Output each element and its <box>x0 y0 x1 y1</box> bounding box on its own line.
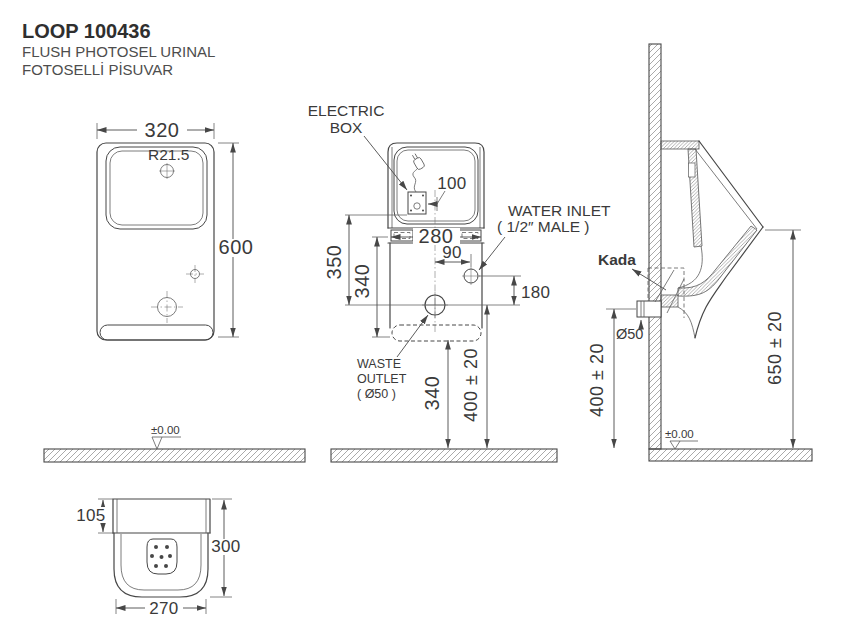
floor-level-marker-front: ±0.00 <box>151 424 181 449</box>
radius-label: R21.5 <box>148 146 189 163</box>
side-view: Kada Ø50 400 ± 20 650 ± 20 ±0.00 <box>587 44 812 461</box>
dim-340-lower-label: 340 <box>421 376 443 411</box>
dim-water-inlet-drop-180: 180 <box>479 276 550 305</box>
pipe-diameter-text: Ø50 <box>616 326 643 342</box>
electric-box <box>408 192 426 214</box>
dim-300-label: 300 <box>211 537 240 556</box>
water-inlet-label: WATER INLET ( 1/2″ MALE ) <box>479 202 611 270</box>
rear-view: ELECTRIC BOX 100 280 WATER INLET ( 1/2″ … <box>308 102 611 462</box>
electric-box-label-line1: ELECTRIC <box>308 102 385 119</box>
wall-section <box>649 44 661 449</box>
dim-400-rear-label: 400 ± 20 <box>461 348 481 422</box>
bowl-plan-inner <box>121 534 201 590</box>
power-cable-plug <box>410 152 425 192</box>
waste-outlet-label-line2: OUTLET <box>357 372 407 386</box>
dim-600-label: 600 <box>219 236 254 258</box>
floor-rear <box>331 449 557 462</box>
spud-band-inner-edges <box>117 499 206 533</box>
inlet-channel-notch <box>689 163 696 177</box>
drawing-canvas: LOOP 100436 FLUSH PHOTOSEL URINAL FOTOSE… <box>0 0 855 628</box>
dim-105-label: 105 <box>76 506 105 525</box>
waste-outlet-marker <box>422 292 448 318</box>
dim-400-side-label: 400 ± 20 <box>587 343 607 417</box>
dim-install-height-400: 400 ± 20 <box>461 305 487 448</box>
outlet-pipe <box>637 301 661 317</box>
dim-350-label: 350 <box>323 245 345 280</box>
dim-electric-box-offset-100: 100 <box>428 174 467 211</box>
product-name-en: FLUSH PHOTOSEL URINAL <box>22 43 215 60</box>
drain-strainer <box>147 539 177 574</box>
floor-side <box>649 449 812 461</box>
dim-rim-height-650: 650 ± 20 <box>765 230 801 448</box>
inner-top-edge <box>695 149 757 229</box>
product-name-tr: FOTOSELLİ PİSUVAR <box>22 61 173 78</box>
waste-outlet-label-line1: WASTE <box>357 357 401 371</box>
dim-bracket-to-base-340: 340 <box>351 237 390 337</box>
dim-90-label: 90 <box>442 243 462 262</box>
radius-target-marker <box>159 163 175 179</box>
dim-height-600: 600 <box>217 143 255 337</box>
front-view: R21.5 320 600 ±0.00 <box>44 119 305 462</box>
trap-label-text: Kada <box>598 251 636 268</box>
electric-box-label-line2: BOX <box>330 119 363 136</box>
fixing-hole-marker <box>186 265 204 283</box>
floor-front <box>44 449 305 462</box>
spud-band-outline <box>113 499 210 533</box>
waste-outlet-label-line3: ( Ø50 ) <box>357 387 396 401</box>
dim-650-label: 650 ± 20 <box>765 311 785 385</box>
plan-view: 105 300 270 <box>75 499 243 618</box>
base-hidden-edge <box>392 325 481 341</box>
bowl-inner-curve <box>678 246 702 288</box>
urinal-front-outline <box>97 143 214 340</box>
dim-base-height-340: 340 <box>421 340 448 448</box>
top-slab-section <box>661 141 699 149</box>
floor-level-label-side: ±0.00 <box>665 428 694 440</box>
dim-320-label: 320 <box>145 119 180 141</box>
pipe-diameter-label: Ø50 <box>616 320 643 342</box>
title-block: LOOP 100436 FLUSH PHOTOSEL URINAL FOTOSE… <box>22 20 215 78</box>
outlet-crosshair-marker <box>151 291 183 323</box>
waste-outlet-label: WASTE OUTLET ( Ø50 ) <box>357 315 428 401</box>
dim-width-320: 320 <box>97 119 214 141</box>
dim-270-label: 270 <box>149 599 178 618</box>
bottom-inner-edge <box>678 307 695 338</box>
dim-spud-depth-105: 105 <box>75 499 113 533</box>
product-code: LOOP 100436 <box>22 20 151 42</box>
floor-level-marker-side: ±0.00 <box>665 428 698 449</box>
base-rim <box>100 325 213 340</box>
floor-level-label-front: ±0.00 <box>151 424 180 436</box>
water-inlet-marker <box>462 267 480 285</box>
dim-180-label: 180 <box>521 283 550 302</box>
outer-top-edge <box>699 141 763 227</box>
bowl-floor-section <box>678 226 757 296</box>
dim-340-upper-label: 340 <box>351 264 373 299</box>
dim-100-label: 100 <box>437 174 466 193</box>
water-inlet-label-line1: WATER INLET <box>508 202 611 219</box>
technical-drawing-sheet: LOOP 100436 FLUSH PHOTOSEL URINAL FOTOSE… <box>0 0 855 628</box>
dim-depth-300: 300 <box>209 499 243 597</box>
bowl-plan-outline <box>114 533 208 597</box>
water-inlet-label-line2: ( 1/2″ MALE ) <box>497 218 590 235</box>
dim-width-270: 270 <box>116 599 206 618</box>
